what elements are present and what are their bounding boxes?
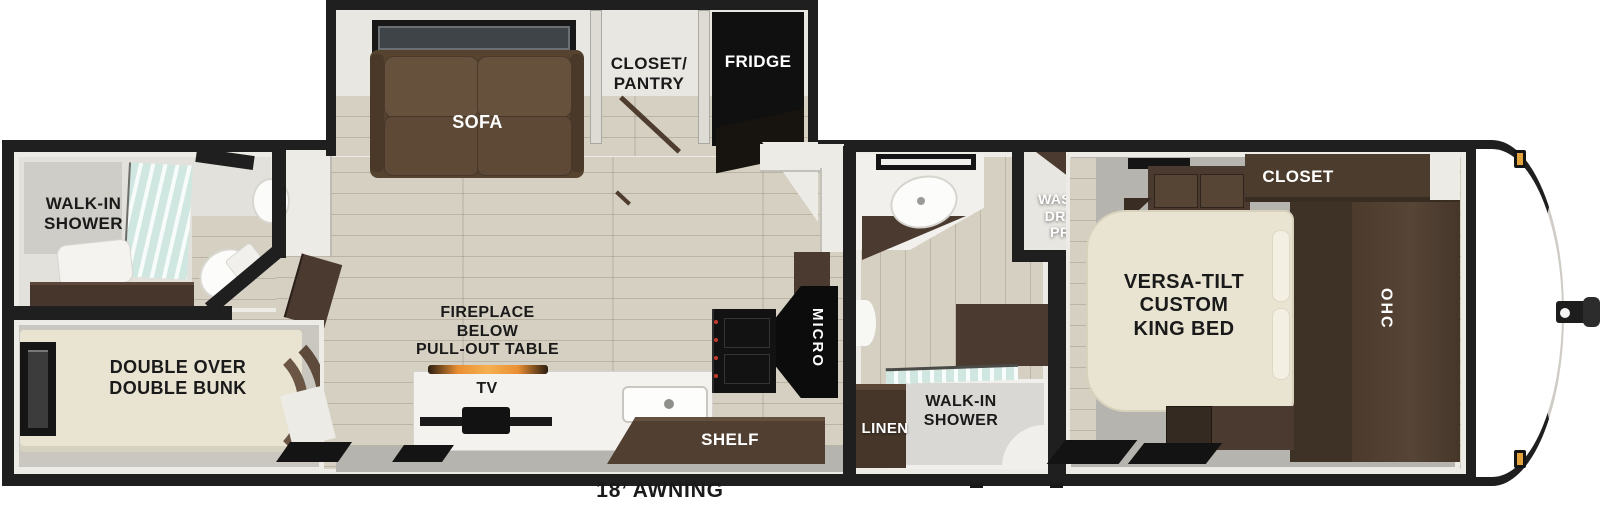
mid-bath-sink-drain	[917, 197, 925, 205]
stove-knob	[714, 374, 718, 378]
sofa-label: SOFA	[430, 112, 525, 134]
stove-knob	[714, 320, 718, 324]
bedroom-divider-cabinet	[1290, 202, 1352, 462]
fireplace-label: FIREPLACE BELOW PULL-OUT TABLE	[395, 303, 580, 361]
hitch-arm	[1583, 297, 1600, 327]
ohc-cabinet	[1352, 202, 1460, 462]
tv-label: TV	[462, 379, 512, 399]
linen-label: LINEN	[848, 420, 922, 438]
closet-label: CLOSET	[1243, 166, 1353, 188]
sofa-armrest-left	[370, 54, 384, 172]
rear-shower-label: WALK-IN SHOWER	[26, 190, 141, 238]
king-bed-label: VERSA-TILT CUSTOM KING BED	[1086, 260, 1282, 352]
stove-knob	[714, 356, 718, 360]
stove-grate	[724, 318, 770, 348]
closet-pantry-wall-right	[698, 10, 710, 144]
hall-wall-face	[284, 150, 332, 256]
rear-bath-vanity	[30, 282, 194, 308]
cabinet-door-panel	[1154, 174, 1198, 208]
micro-label: MICRO	[804, 300, 830, 376]
fridge-label: FRIDGE	[712, 52, 804, 72]
rear-bath-right-wall	[272, 146, 286, 258]
marker-light	[1517, 153, 1523, 165]
stove	[712, 309, 776, 393]
front-cap	[1476, 140, 1564, 486]
ohc-label: OHC	[1372, 274, 1398, 344]
sofa-back-cushion	[384, 56, 479, 118]
front-wall-face-patch	[1430, 152, 1460, 200]
awning-mount-tick	[1050, 483, 1063, 488]
kitchen-faucet	[664, 399, 674, 409]
shelf-label: SHELF	[680, 430, 780, 450]
marker-light	[1517, 453, 1523, 465]
fireplace-flame	[428, 365, 548, 374]
hitch-notch	[1560, 308, 1570, 318]
closet-pantry-label: CLOSET/ PANTRY	[600, 50, 698, 98]
stove-knob	[714, 338, 718, 342]
mid-bath-wall-panel	[956, 304, 1048, 366]
rv-floorplan-canvas: WALK-IN SHOWER DOUBLE OVER DOUBLE BUNK C…	[0, 0, 1600, 508]
sofa-back-cushion	[477, 56, 572, 118]
bed-foot-cabinet-small	[1166, 406, 1212, 444]
stove-grate	[724, 354, 770, 384]
rear-bath-bottom-wall	[8, 306, 232, 320]
awning-mount-tick	[970, 483, 983, 488]
sofa-armrest-right	[570, 54, 584, 172]
bunk-window-glass	[28, 350, 48, 428]
mid-bath-skylight	[876, 154, 976, 170]
bedroom-overhead-cabinet	[1148, 166, 1250, 214]
bunk-label: DOUBLE OVER DOUBLE BUNK	[78, 354, 278, 402]
cabinet-door-panel	[1200, 174, 1244, 208]
bedroom-step	[1128, 443, 1222, 464]
awning-label: 18’ AWNING	[545, 478, 775, 504]
tv-stand	[462, 407, 510, 434]
mid-bath-toilet	[856, 300, 876, 346]
